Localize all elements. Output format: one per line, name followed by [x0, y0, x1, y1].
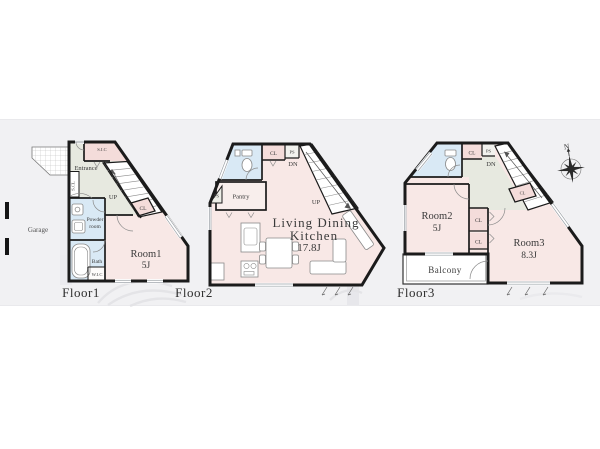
site-boundary-mark [5, 202, 9, 219]
ldk-size: 17.8J [297, 242, 321, 254]
floorplan-svg: Garage [0, 0, 600, 449]
floor2-label: Floor2 [175, 285, 213, 300]
pantry-label: Pantry [233, 194, 251, 201]
bath-label: Bath [92, 259, 103, 265]
cl-stair-label: CL [520, 191, 526, 196]
ps-label: PS [289, 150, 295, 155]
fridge [211, 263, 224, 280]
cl-lower-label: CL [475, 240, 483, 246]
ps-side-label: PS [214, 194, 220, 199]
balcony-label: Balcony [428, 265, 462, 275]
dining-table [266, 238, 292, 268]
floor3-toilet-fixture [445, 150, 456, 171]
sofa [310, 261, 346, 274]
room2-label: Room2 [422, 211, 453, 222]
room3-label: Room3 [514, 238, 545, 249]
cl-label: CL [139, 206, 147, 212]
room2-size: 5J [433, 224, 442, 234]
up-label: UP [312, 199, 321, 206]
room3-size: 8.3J [521, 251, 537, 261]
scl-label: S.CL [71, 181, 76, 191]
ps-label: PS [486, 149, 492, 154]
dn-label: DN [288, 161, 298, 168]
floorplan-image: Garage [0, 0, 600, 449]
ldk-label-2: Kitchen [290, 228, 338, 243]
cl-label: CL [270, 151, 278, 157]
entrance-label: Entrance [74, 165, 97, 172]
powder-label-1: Powder [87, 217, 104, 223]
up-label: UP [109, 194, 118, 201]
floor3-label: Floor3 [397, 285, 435, 300]
wic-label: W.I.C [92, 272, 103, 277]
site-boundary-mark [5, 238, 9, 255]
powder-label-2: room [89, 224, 101, 230]
floor1-label: Floor1 [62, 285, 100, 300]
room1-label: Room1 [131, 249, 162, 260]
stove [241, 261, 258, 277]
dn-label: DN [486, 161, 496, 168]
cl-upper-label: CL [475, 218, 483, 224]
room1-size: 5J [142, 261, 151, 271]
garage-label: Garage [28, 226, 48, 234]
sic-label: S.I.C [97, 147, 106, 152]
cl-top-label: CL [468, 151, 476, 157]
